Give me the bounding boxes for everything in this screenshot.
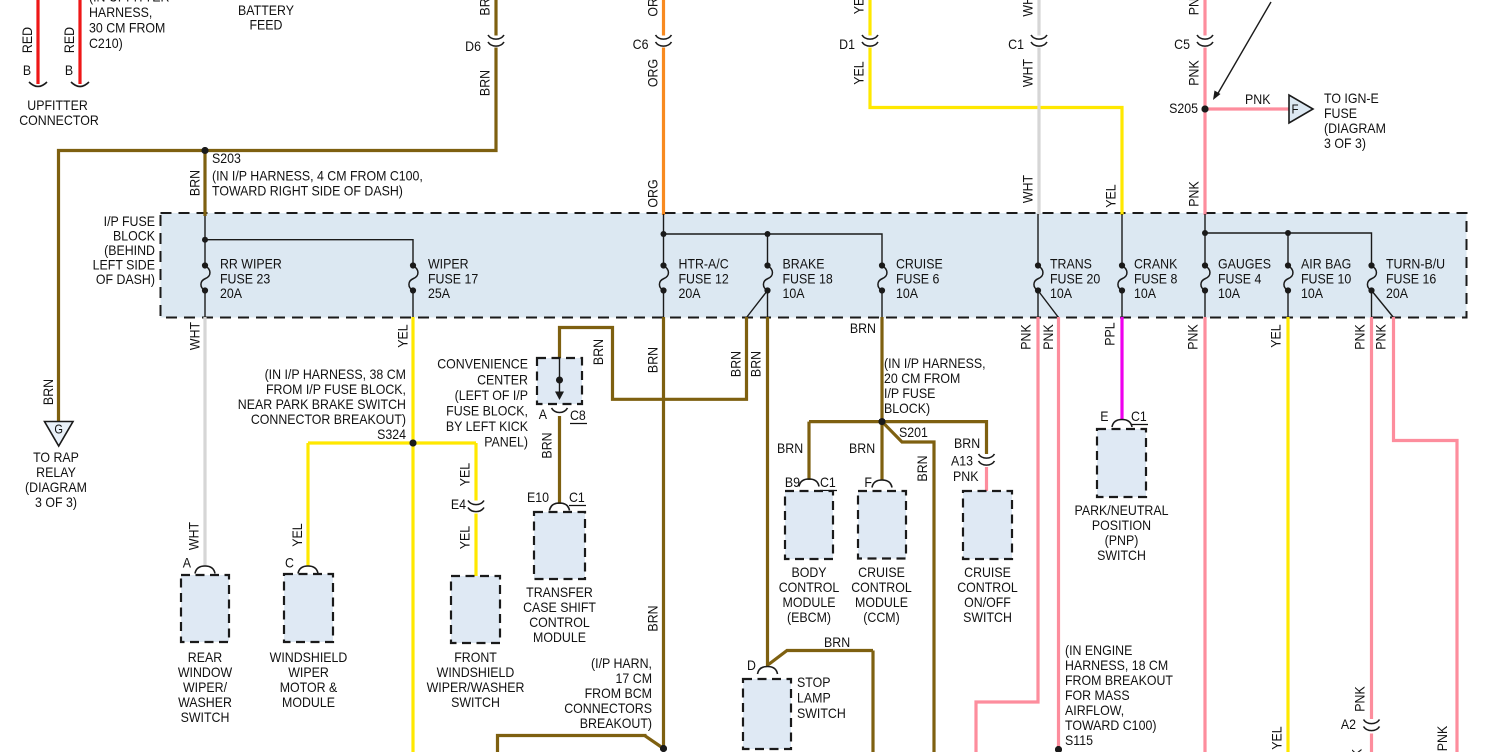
svg-text:WIPER: WIPER — [428, 256, 469, 272]
svg-text:CASE SHIFT: CASE SHIFT — [523, 599, 596, 615]
svg-text:CONVENIENCE: CONVENIENCE — [437, 356, 528, 372]
svg-text:FUSE 23: FUSE 23 — [220, 271, 270, 287]
svg-text:BY LEFT KICK: BY LEFT KICK — [446, 418, 528, 434]
svg-text:BRN: BRN — [824, 634, 850, 650]
svg-text:YEL: YEL — [1268, 324, 1284, 347]
svg-text:BRN: BRN — [645, 347, 661, 373]
svg-text:BATTERY: BATTERY — [238, 2, 294, 18]
svg-text:FUSE 6: FUSE 6 — [896, 271, 939, 287]
svg-text:(DIAGRAM: (DIAGRAM — [25, 479, 87, 495]
svg-text:TOWARD C100): TOWARD C100) — [1065, 717, 1156, 733]
svg-text:BRN: BRN — [748, 351, 764, 377]
svg-text:D1: D1 — [839, 36, 855, 52]
svg-text:FROM I/P FUSE BLOCK,: FROM I/P FUSE BLOCK, — [266, 381, 406, 397]
svg-text:PNK: PNK — [1185, 324, 1201, 350]
svg-text:(IN ENGINE: (IN ENGINE — [1065, 642, 1133, 658]
svg-text:10A: 10A — [1050, 285, 1072, 301]
svg-text:AIRFLOW,: AIRFLOW, — [1065, 702, 1124, 718]
svg-text:10A: 10A — [896, 285, 918, 301]
svg-text:REAR: REAR — [188, 649, 222, 665]
svg-text:UPFITTER: UPFITTER — [27, 97, 87, 113]
svg-text:E10: E10 — [527, 489, 549, 505]
svg-text:MODULE: MODULE — [855, 594, 908, 610]
svg-text:10A: 10A — [1134, 285, 1156, 301]
svg-text:B: B — [23, 62, 31, 78]
svg-text:25A: 25A — [428, 285, 450, 301]
svg-text:17 CM: 17 CM — [616, 670, 652, 686]
svg-text:HARNESS, 18 CM: HARNESS, 18 CM — [1065, 657, 1168, 673]
svg-text:PNK: PNK — [1373, 324, 1389, 350]
svg-text:F: F — [1292, 102, 1299, 117]
svg-text:BRN: BRN — [187, 170, 203, 196]
svg-text:CRUISE: CRUISE — [896, 256, 943, 272]
svg-text:FUSE 8: FUSE 8 — [1134, 271, 1177, 287]
svg-text:S201: S201 — [899, 424, 928, 440]
svg-text:PNK: PNK — [1040, 324, 1056, 350]
svg-text:YEL: YEL — [395, 324, 411, 347]
svg-text:PNK: PNK — [1018, 324, 1034, 350]
svg-text:BREAKOUT): BREAKOUT) — [580, 715, 652, 731]
svg-text:FRONT: FRONT — [454, 649, 497, 665]
svg-text:E: E — [1100, 408, 1108, 424]
svg-text:(I/P HARN,: (I/P HARN, — [591, 655, 652, 671]
svg-text:(IN I/P HARNESS,: (IN I/P HARNESS, — [884, 355, 986, 371]
svg-text:FOR MASS: FOR MASS — [1065, 687, 1130, 703]
svg-text:G: G — [54, 422, 63, 437]
svg-text:BRN: BRN — [477, 70, 493, 96]
svg-text:A2: A2 — [1341, 716, 1356, 732]
svg-text:HTR-A/C: HTR-A/C — [679, 256, 730, 272]
svg-text:20 CM FROM: 20 CM FROM — [884, 370, 960, 386]
svg-text:PNK: PNK — [1349, 749, 1365, 752]
svg-text:PNK: PNK — [1434, 726, 1450, 752]
svg-text:FUSE 20: FUSE 20 — [1050, 271, 1100, 287]
svg-text:(EBCM): (EBCM) — [787, 609, 831, 625]
svg-text:MODULE: MODULE — [282, 694, 335, 710]
svg-text:RR WIPER: RR WIPER — [220, 256, 282, 272]
svg-text:C1: C1 — [569, 489, 585, 505]
svg-text:LAMP: LAMP — [797, 690, 831, 706]
svg-text:PNK: PNK — [1352, 324, 1368, 350]
svg-text:ORG: ORG — [645, 59, 661, 87]
svg-text:NEAR PARK BRAKE SWITCH: NEAR PARK BRAKE SWITCH — [238, 396, 406, 412]
svg-text:FUSE 12: FUSE 12 — [679, 271, 729, 287]
svg-text:S324: S324 — [377, 426, 406, 442]
svg-text:BLOCK): BLOCK) — [884, 400, 930, 416]
svg-text:(IN I/P HARNESS, 38 CM: (IN I/P HARNESS, 38 CM — [265, 366, 406, 382]
svg-text:CONNECTOR BREAKOUT): CONNECTOR BREAKOUT) — [251, 411, 406, 427]
svg-text:BRN: BRN — [645, 605, 661, 631]
svg-text:BODY: BODY — [791, 564, 826, 580]
svg-text:BRN: BRN — [539, 432, 555, 458]
svg-text:SWITCH: SWITCH — [181, 709, 230, 725]
svg-text:MOTOR &: MOTOR & — [280, 679, 338, 695]
svg-text:WIPER: WIPER — [288, 664, 329, 680]
svg-text:D6: D6 — [465, 38, 481, 54]
svg-text:BRN: BRN — [40, 379, 56, 405]
svg-text:HARNESS,: HARNESS, — [89, 4, 152, 20]
svg-text:PANEL): PANEL) — [484, 434, 528, 450]
svg-text:(IN I/P HARNESS, 4 CM FROM C10: (IN I/P HARNESS, 4 CM FROM C100, — [212, 168, 423, 184]
svg-text:WASHER: WASHER — [178, 694, 232, 710]
svg-text:FROM BCM: FROM BCM — [585, 685, 652, 701]
svg-text:YEL: YEL — [1103, 184, 1119, 207]
svg-text:D: D — [747, 657, 756, 673]
svg-text:30 CM FROM: 30 CM FROM — [89, 20, 165, 36]
svg-text:OF DASH): OF DASH) — [96, 271, 155, 287]
svg-text:PNK: PNK — [1186, 60, 1202, 86]
svg-text:TURN-B/U: TURN-B/U — [1386, 256, 1445, 272]
svg-text:3 OF 3): 3 OF 3) — [35, 494, 77, 510]
svg-text:A13: A13 — [951, 453, 973, 469]
svg-text:CRANK: CRANK — [1134, 256, 1177, 272]
svg-text:FUSE BLOCK,: FUSE BLOCK, — [446, 403, 528, 419]
svg-text:FUSE 16: FUSE 16 — [1386, 271, 1436, 287]
svg-text:10A: 10A — [783, 285, 805, 301]
svg-text:(DIAGRAM: (DIAGRAM — [1324, 120, 1386, 136]
svg-text:CONTROL: CONTROL — [529, 614, 590, 630]
svg-text:BRN: BRN — [914, 455, 930, 481]
svg-text:3 OF 3): 3 OF 3) — [1324, 135, 1366, 151]
svg-text:WHT: WHT — [187, 322, 203, 350]
svg-text:FUSE 10: FUSE 10 — [1301, 271, 1351, 287]
svg-text:BRN: BRN — [954, 435, 980, 451]
svg-text:C1: C1 — [1131, 408, 1147, 424]
svg-text:20A: 20A — [679, 285, 701, 301]
svg-text:A: A — [539, 406, 547, 422]
svg-text:FUSE: FUSE — [1324, 105, 1357, 121]
svg-text:PNK: PNK — [953, 468, 979, 484]
svg-text:F: F — [864, 474, 872, 490]
svg-text:ON/OFF: ON/OFF — [964, 594, 1011, 610]
svg-text:MODULE: MODULE — [783, 594, 836, 610]
svg-text:E4: E4 — [451, 496, 466, 512]
svg-text:WIPER/WASHER: WIPER/WASHER — [427, 679, 525, 695]
svg-text:WHT: WHT — [186, 522, 202, 550]
svg-text:CRUISE: CRUISE — [858, 564, 905, 580]
svg-text:WINDSHIELD: WINDSHIELD — [437, 664, 515, 680]
svg-text:SWITCH: SWITCH — [797, 705, 846, 721]
svg-text:AIR BAG: AIR BAG — [1301, 256, 1351, 272]
svg-text:10A: 10A — [1301, 285, 1323, 301]
svg-text:GAUGES: GAUGES — [1218, 256, 1271, 272]
svg-text:C210): C210) — [89, 35, 123, 51]
svg-text:S203: S203 — [212, 150, 241, 166]
svg-text:C6: C6 — [633, 36, 649, 52]
svg-text:PNK: PNK — [1186, 0, 1202, 15]
svg-text:ORG: ORG — [645, 0, 661, 17]
svg-text:YEL: YEL — [457, 463, 473, 486]
svg-text:WHT: WHT — [1020, 59, 1036, 87]
svg-text:FUSE 17: FUSE 17 — [428, 271, 478, 287]
svg-text:WINDSHIELD: WINDSHIELD — [270, 649, 348, 665]
svg-text:SWITCH: SWITCH — [963, 609, 1012, 625]
svg-text:CONTROL: CONTROL — [779, 579, 840, 595]
svg-text:(LEFT OF I/P: (LEFT OF I/P — [455, 387, 529, 403]
svg-text:STOP: STOP — [797, 674, 831, 690]
svg-text:20A: 20A — [220, 285, 242, 301]
svg-text:BRN: BRN — [850, 320, 876, 336]
svg-text:YEL: YEL — [457, 526, 473, 549]
svg-text:SWITCH: SWITCH — [1097, 547, 1146, 563]
svg-text:PNK: PNK — [1186, 181, 1202, 207]
svg-text:RELAY: RELAY — [36, 464, 76, 480]
svg-text:CONTROL: CONTROL — [957, 579, 1018, 595]
svg-text:BRN: BRN — [777, 440, 803, 456]
svg-text:RED: RED — [19, 27, 35, 53]
svg-text:SWITCH: SWITCH — [451, 694, 500, 710]
svg-text:B9: B9 — [785, 474, 800, 490]
svg-text:FUSE 18: FUSE 18 — [783, 271, 833, 287]
svg-text:CONNECTORS: CONNECTORS — [564, 700, 652, 716]
svg-text:TO IGN-E: TO IGN-E — [1324, 90, 1379, 106]
svg-text:YEL: YEL — [1269, 726, 1285, 749]
svg-text:YEL: YEL — [851, 0, 867, 14]
svg-text:TRANS: TRANS — [1050, 256, 1092, 272]
svg-text:C1: C1 — [1008, 36, 1024, 52]
svg-text:C: C — [285, 555, 294, 571]
svg-text:FUSE 4: FUSE 4 — [1218, 271, 1261, 287]
svg-text:CENTER: CENTER — [477, 372, 528, 388]
svg-text:ORG: ORG — [645, 179, 661, 207]
svg-text:WHT: WHT — [1020, 0, 1036, 17]
svg-text:S205: S205 — [1169, 100, 1198, 116]
svg-text:10A: 10A — [1218, 285, 1240, 301]
svg-text:I/P FUSE: I/P FUSE — [884, 385, 936, 401]
svg-text:CONNECTOR: CONNECTOR — [19, 112, 99, 128]
svg-text:BRN: BRN — [590, 339, 606, 365]
svg-text:PNK: PNK — [1352, 686, 1368, 712]
svg-text:POSITION: POSITION — [1092, 517, 1151, 533]
svg-text:FEED: FEED — [249, 17, 282, 33]
svg-text:C8: C8 — [570, 407, 586, 423]
svg-text:B: B — [65, 62, 73, 78]
svg-text:RED: RED — [61, 27, 77, 53]
svg-text:TRANSFER: TRANSFER — [526, 584, 593, 600]
svg-text:20A: 20A — [1386, 285, 1408, 301]
svg-text:CRUISE: CRUISE — [964, 564, 1011, 580]
svg-text:PPL: PPL — [1102, 322, 1118, 345]
svg-text:PARK/NEUTRAL: PARK/NEUTRAL — [1075, 502, 1169, 518]
svg-text:(PNP): (PNP) — [1105, 532, 1139, 548]
svg-text:YEL: YEL — [289, 523, 305, 546]
svg-text:TOWARD RIGHT SIDE OF DASH): TOWARD RIGHT SIDE OF DASH) — [212, 183, 403, 199]
svg-text:FROM BREAKOUT: FROM BREAKOUT — [1065, 672, 1173, 688]
svg-text:WIPER/: WIPER/ — [183, 679, 227, 695]
svg-text:BRN: BRN — [728, 351, 744, 377]
svg-text:S115: S115 — [1065, 732, 1093, 748]
svg-text:BRN: BRN — [849, 440, 875, 456]
svg-text:BRN: BRN — [477, 0, 493, 16]
svg-text:C1: C1 — [820, 474, 836, 490]
svg-text:PNK: PNK — [1245, 91, 1271, 107]
svg-text:CONTROL: CONTROL — [851, 579, 912, 595]
svg-text:BRAKE: BRAKE — [783, 256, 825, 272]
svg-text:MODULE: MODULE — [533, 629, 586, 645]
svg-text:C5: C5 — [1174, 36, 1190, 52]
svg-text:WHT: WHT — [1020, 175, 1036, 203]
svg-text:TO RAP: TO RAP — [33, 449, 79, 465]
svg-text:WINDOW: WINDOW — [178, 664, 233, 680]
svg-text:A: A — [183, 555, 191, 571]
svg-text:YEL: YEL — [851, 61, 867, 84]
svg-text:(CCM): (CCM) — [863, 609, 899, 625]
